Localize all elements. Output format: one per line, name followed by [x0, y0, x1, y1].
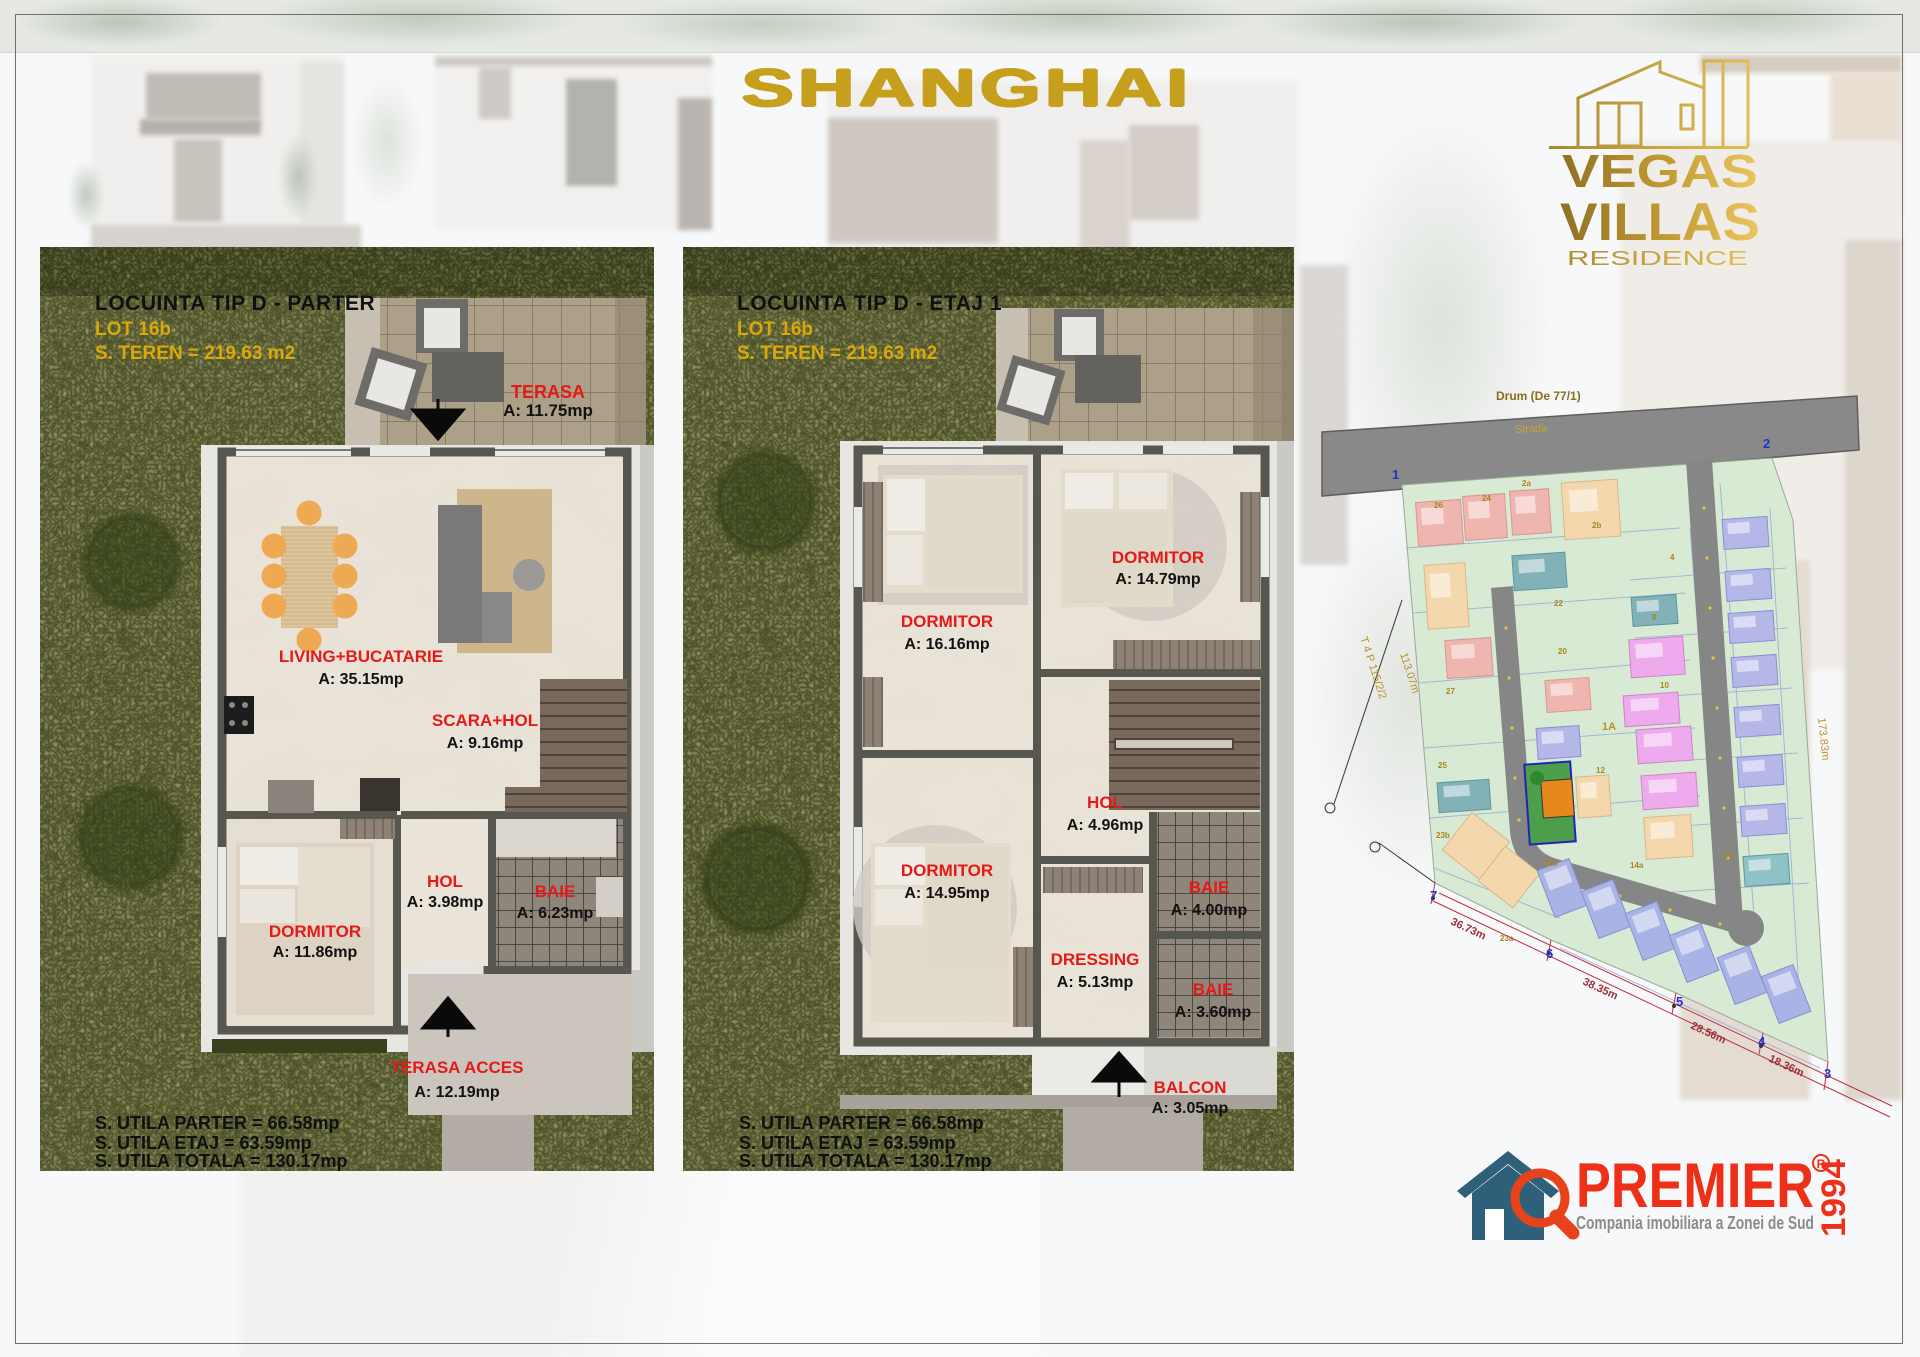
- svg-text:Strada: Strada: [1515, 422, 1549, 436]
- svg-text:S. UTILA PARTER = 66.58mp: S. UTILA PARTER = 66.58mp: [95, 1113, 340, 1133]
- svg-text:SCARA+HOL: SCARA+HOL: [432, 711, 538, 730]
- svg-text:1994: 1994: [1815, 1159, 1853, 1237]
- svg-text:LOCUINTA TIP D - PARTER: LOCUINTA TIP D - PARTER: [95, 292, 375, 315]
- svg-text:A: 5.13mp: A: 5.13mp: [1057, 974, 1134, 991]
- svg-text:A: 14.79mp: A: 14.79mp: [1115, 571, 1201, 588]
- svg-text:DORMITOR: DORMITOR: [901, 861, 993, 880]
- svg-text:PREMIER: PREMIER: [1576, 1151, 1814, 1221]
- svg-text:BAIE: BAIE: [1189, 878, 1230, 897]
- svg-text:14a: 14a: [1630, 861, 1644, 870]
- svg-text:A: 11.86mp: A: 11.86mp: [273, 944, 358, 961]
- svg-text:4: 4: [1758, 1034, 1766, 1049]
- svg-text:22: 22: [1554, 599, 1563, 608]
- svg-text:A: 35.15mp: A: 35.15mp: [318, 671, 404, 688]
- svg-text:12: 12: [1596, 766, 1605, 775]
- svg-text:15: 15: [1724, 851, 1733, 860]
- svg-text:A: 3.60mp: A: 3.60mp: [1175, 1004, 1252, 1021]
- svg-text:BAIE: BAIE: [535, 882, 576, 901]
- svg-text:10: 10: [1660, 681, 1669, 690]
- svg-text:5: 5: [1676, 994, 1683, 1009]
- svg-text:16b: 16b: [1544, 859, 1558, 868]
- svg-text:S. UTILA TOTALA = 130.17mp: S. UTILA TOTALA = 130.17mp: [739, 1151, 992, 1171]
- svg-text:HOL: HOL: [427, 872, 463, 891]
- svg-text:2: 2: [1763, 436, 1770, 451]
- svg-text:DORMITOR: DORMITOR: [901, 612, 993, 631]
- svg-text:2a: 2a: [1522, 479, 1531, 488]
- svg-text:26: 26: [1434, 501, 1443, 510]
- svg-text:DORMITOR: DORMITOR: [269, 922, 361, 941]
- svg-text:Drum (De 77/1): Drum (De 77/1): [1496, 389, 1581, 403]
- svg-text:25: 25: [1438, 761, 1447, 770]
- svg-text:TERASA: TERASA: [511, 382, 585, 402]
- svg-text:27: 27: [1446, 687, 1455, 696]
- svg-text:3: 3: [1824, 1066, 1831, 1081]
- svg-text:LIVING+BUCATARIE: LIVING+BUCATARIE: [279, 647, 443, 666]
- svg-text:TERASA ACCES: TERASA ACCES: [391, 1058, 524, 1077]
- svg-text:S. UTILA PARTER = 66.58mp: S. UTILA PARTER = 66.58mp: [739, 1113, 984, 1133]
- svg-text:A: 4.96mp: A: 4.96mp: [1067, 817, 1144, 834]
- svg-text:8: 8: [1652, 613, 1657, 622]
- svg-text:A: 16.16mp: A: 16.16mp: [904, 636, 990, 653]
- svg-text:S. UTILA ETAJ = 63.59mp: S. UTILA ETAJ = 63.59mp: [739, 1133, 956, 1153]
- svg-text:LOT 16b: LOT 16b: [95, 319, 171, 340]
- svg-text:A: 3.98mp: A: 3.98mp: [407, 894, 484, 911]
- svg-text:173.83m: 173.83m: [1815, 717, 1831, 761]
- svg-text:S. UTILA TOTALA = 130.17mp: S. UTILA TOTALA = 130.17mp: [95, 1151, 348, 1171]
- svg-text:HOL: HOL: [1087, 793, 1123, 812]
- svg-text:18.36m: 18.36m: [1767, 1053, 1806, 1080]
- svg-text:A: 14.95mp: A: 14.95mp: [904, 885, 990, 902]
- svg-text:S. UTILA ETAJ = 63.59mp: S. UTILA ETAJ = 63.59mp: [95, 1133, 312, 1153]
- svg-text:LOT 16b: LOT 16b: [737, 319, 813, 340]
- svg-text:1A: 1A: [1602, 721, 1616, 733]
- svg-text:A: 12.19mp: A: 12.19mp: [414, 1084, 500, 1101]
- svg-text:20: 20: [1558, 647, 1567, 656]
- svg-text:RESIDENCE: RESIDENCE: [1567, 248, 1748, 270]
- svg-text:28.56m: 28.56m: [1689, 1020, 1728, 1047]
- svg-text:DORMITOR: DORMITOR: [1112, 548, 1204, 567]
- svg-text:4: 4: [1670, 553, 1675, 562]
- svg-text:LOCUINTA TIP D - ETAJ 1: LOCUINTA TIP D - ETAJ 1: [737, 292, 1002, 315]
- svg-text:DRESSING: DRESSING: [1051, 950, 1140, 969]
- svg-text:1: 1: [1392, 467, 1399, 482]
- svg-text:VEGAS: VEGAS: [1562, 145, 1758, 197]
- svg-text:BAIE: BAIE: [1193, 980, 1234, 999]
- svg-text:36.73m: 36.73m: [1449, 916, 1488, 943]
- svg-text:S. TEREN = 219.63 m2: S. TEREN = 219.63 m2: [95, 343, 295, 364]
- svg-text:A: 3.05mp: A: 3.05mp: [1152, 1100, 1229, 1117]
- svg-text:A: 4.00mp: A: 4.00mp: [1171, 902, 1248, 919]
- svg-text:6: 6: [1546, 946, 1553, 961]
- svg-text:24: 24: [1482, 494, 1491, 503]
- svg-text:T 4 P 115/2/2: T 4 P 115/2/2: [1357, 635, 1388, 700]
- svg-text:2b: 2b: [1592, 521, 1601, 530]
- svg-text:7: 7: [1430, 888, 1437, 903]
- svg-text:A: 6.23mp: A: 6.23mp: [517, 905, 594, 922]
- svg-text:Compania imobiliara a Zonei de: Compania imobiliara a Zonei de Sud: [1576, 1213, 1814, 1233]
- svg-text:A: 11.75mp: A: 11.75mp: [503, 401, 593, 420]
- svg-text:S. TEREN = 219.63 m2: S. TEREN = 219.63 m2: [737, 343, 937, 364]
- svg-text:23b: 23b: [1436, 831, 1450, 840]
- svg-text:A: 9.16mp: A: 9.16mp: [447, 735, 524, 752]
- svg-text:BALCON: BALCON: [1154, 1078, 1227, 1097]
- svg-text:VILLAS: VILLAS: [1560, 193, 1760, 252]
